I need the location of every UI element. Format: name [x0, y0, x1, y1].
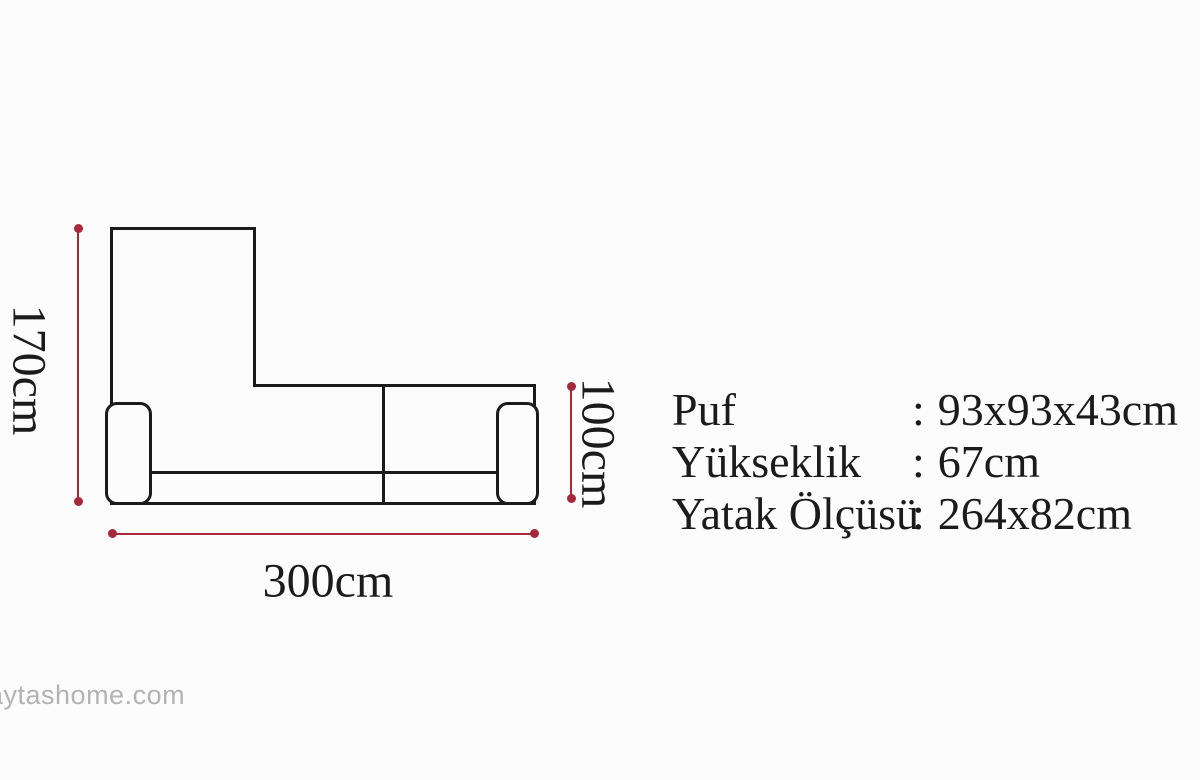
height-dimension-label: 170cm [29, 370, 160, 425]
height-dimension-line [77, 228, 79, 502]
spec-row-yatak-olcusu: Yatak Ölçüsü : 264x82cm [672, 488, 1178, 540]
seat-front-line [150, 471, 500, 474]
watermark-site-url: aytashome.com [0, 680, 185, 711]
width-dimension-right-dot [530, 529, 539, 538]
height-dimension-bottom-dot [74, 497, 83, 506]
width-dimension-label: 300cm [328, 581, 459, 636]
spec-row-yukseklik: Yükseklik : 67cm [672, 436, 1178, 488]
spec-separator: : [912, 436, 925, 488]
spec-value: 93x93x43cm [938, 384, 1178, 436]
width-dimension-left-dot [108, 529, 117, 538]
spec-label: Puf [672, 384, 912, 436]
spec-label: Yatak Ölçüsü [672, 488, 912, 540]
spec-list: Puf : 93x93x43cm Yükseklik : 67cm Yatak … [672, 384, 1178, 540]
spec-value: 264x82cm [938, 488, 1132, 540]
width-dimension-line [112, 533, 535, 535]
spec-row-puf: Puf : 93x93x43cm [672, 384, 1178, 436]
spec-separator: : [912, 488, 925, 540]
height-dimension-top-dot [74, 224, 83, 233]
right-armrest-outline [496, 402, 539, 505]
seat-section-outline [253, 384, 536, 505]
spec-separator: : [912, 384, 925, 436]
spec-value: 67cm [938, 436, 1040, 488]
seat-divider-line [382, 384, 385, 505]
spec-label: Yükseklik [672, 436, 912, 488]
product-dimension-diagram: 170cm 100cm 300cm Puf : 93x93x43cm Yükse… [0, 0, 1200, 780]
